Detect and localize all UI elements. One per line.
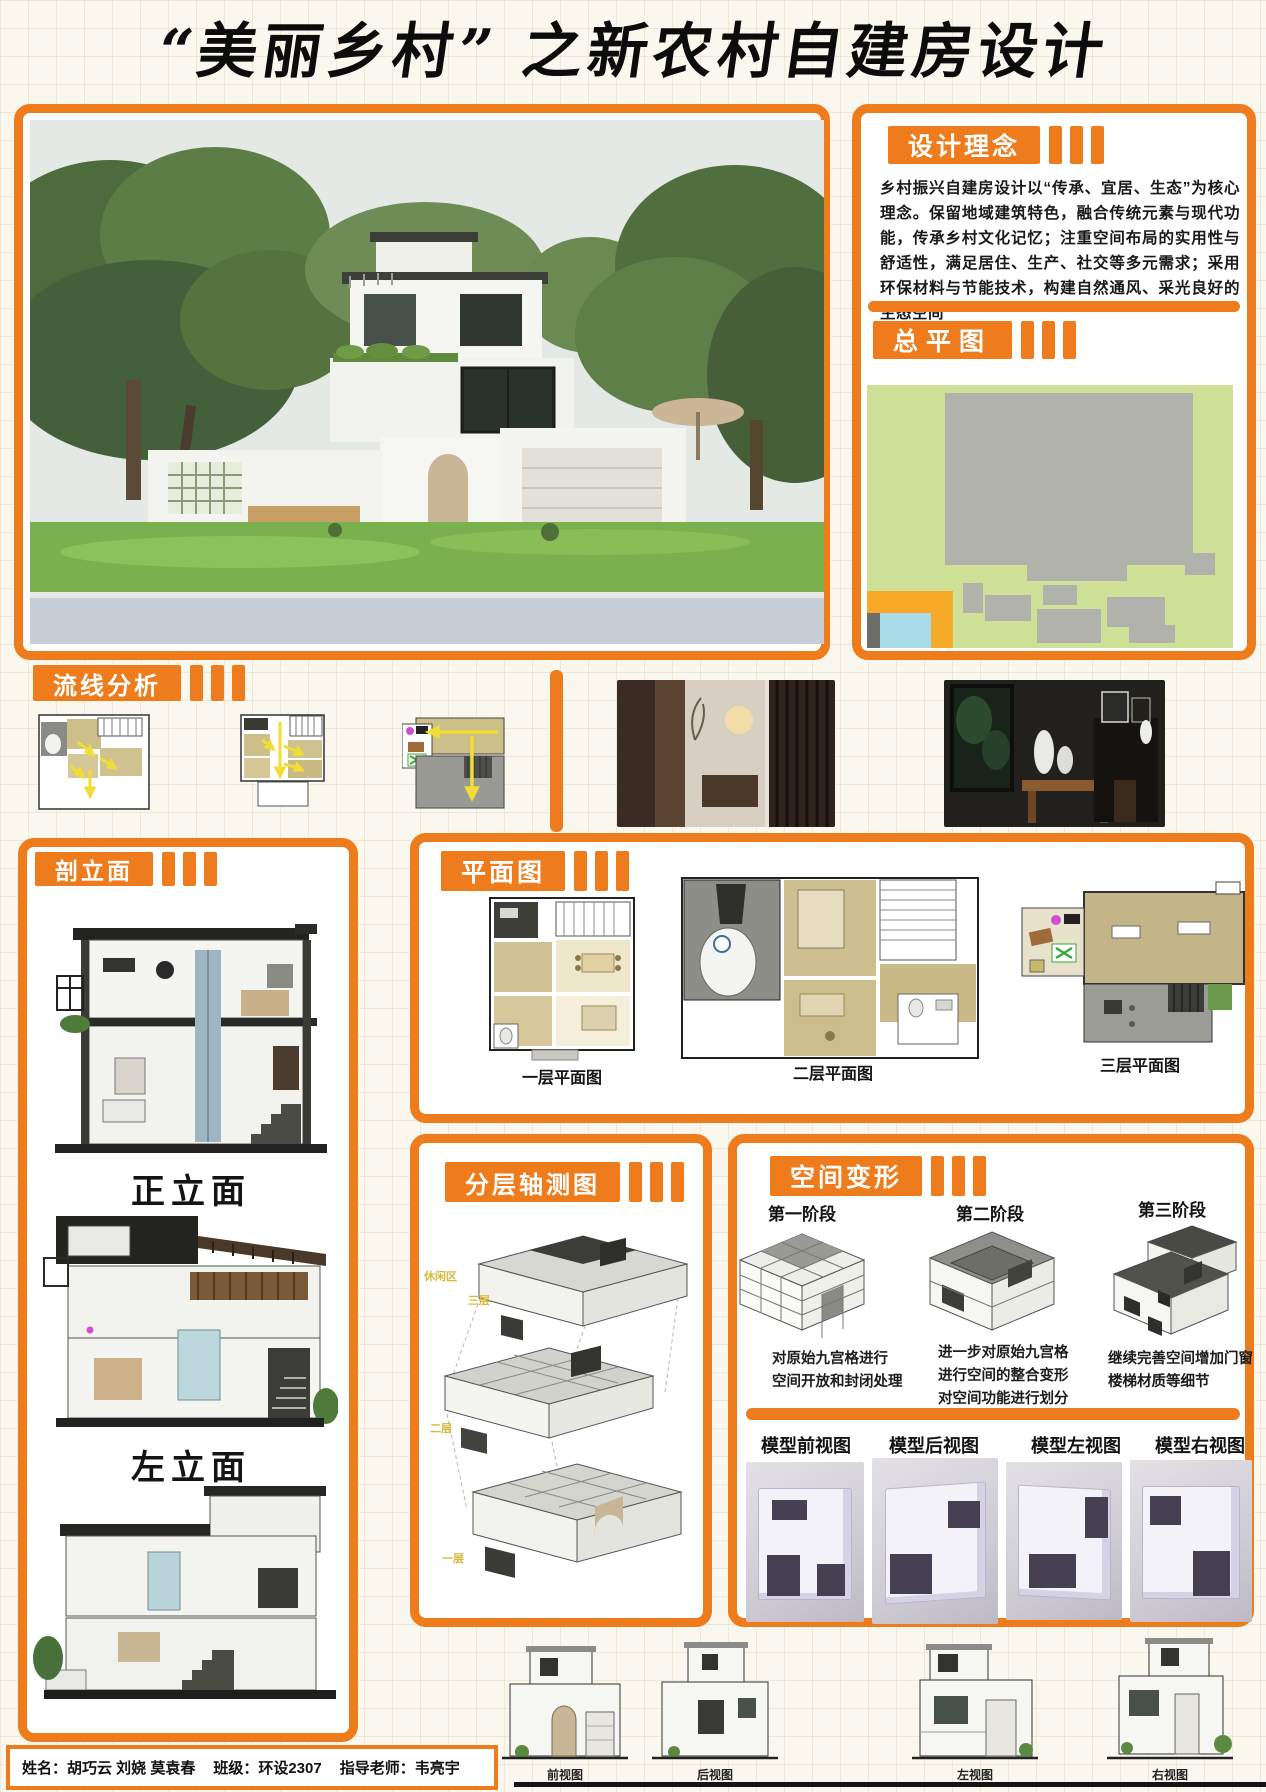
floor-plans-heading: 平面图 [441, 851, 565, 891]
poster-title-row: “美丽乡村” 之新农村自建房设计 [0, 8, 1266, 96]
master-plan-map [867, 385, 1233, 648]
section-heading: 剖立面 [35, 852, 153, 886]
header-stripes-icon [162, 852, 217, 886]
stage-2-model [922, 1226, 1062, 1340]
map-pool [880, 613, 931, 648]
poster-board: “美丽乡村” 之新农村自建房设计 [0, 0, 1266, 1792]
credit-class: 班级：环设2307 [213, 1757, 321, 1778]
elevation-front-drawing [500, 1642, 630, 1764]
model-photo-front [746, 1462, 864, 1622]
axon-level-2 [445, 1346, 653, 1454]
space-transform-heading: 空间变形 [770, 1156, 922, 1196]
master-plan-header: 总平图 [873, 321, 1076, 359]
axon-tag-leisure: 休闲区 [424, 1268, 457, 1284]
model-right-view-label: 模型右视图 [1144, 1432, 1256, 1458]
road [30, 598, 824, 644]
header-stripes-icon [1021, 321, 1076, 359]
house-render-image [30, 120, 824, 644]
space-transform-header: 空间变形 [770, 1156, 986, 1196]
floor-plan-3 [1020, 880, 1248, 1044]
model-photo-rear [872, 1458, 998, 1624]
axon-tag-floor3: 三层 [468, 1292, 490, 1308]
circulation-plan-3 [402, 716, 506, 810]
floor-plan-2-label: 二层平面图 [718, 1060, 948, 1084]
circulation-plan-1 [38, 714, 150, 810]
front-section-label: 正立面 [45, 1164, 337, 1213]
floor-plan-1 [486, 896, 638, 1062]
axonometric-heading: 分层轴测图 [445, 1162, 620, 1202]
stage-1-label: 第一阶段 [742, 1200, 862, 1225]
section-drawing-front [45, 898, 337, 1160]
elevation-right-drawing [1105, 1636, 1235, 1764]
axon-level-1 [473, 1464, 681, 1578]
stage-3-model [1096, 1222, 1246, 1340]
transform-divider [746, 1408, 1240, 1420]
stage-3-label: 第三阶段 [1112, 1196, 1232, 1221]
section-drawing-left [38, 1208, 338, 1436]
header-stripes-icon [931, 1156, 986, 1196]
stage-1-model [732, 1228, 872, 1340]
circulation-header: 流线分析 [33, 665, 245, 701]
interior-photo-hallway [617, 680, 835, 827]
circulation-heading: 流线分析 [33, 665, 181, 701]
elevation-front-label: 前视图 [500, 1766, 630, 1783]
floor-plans-header: 平面图 [441, 851, 629, 891]
stage-2-description: 进一步对原始九宫格 进行空间的整合变形 对空间功能进行划分 [938, 1342, 1113, 1411]
model-left-view-label: 模型左视图 [1020, 1432, 1132, 1458]
credits-box: 姓名：胡巧云 刘娆 莫袁春 班级：环设2307 指导老师：韦亮宇 [6, 1745, 498, 1790]
hero-render-panel [14, 104, 830, 660]
footer-rule [514, 1782, 1266, 1787]
axon-level-3 [479, 1236, 687, 1340]
model-photo-right [1130, 1460, 1252, 1622]
stage-3-description: 继续完善空间增加门窗 楼梯材质等细节 [1108, 1348, 1266, 1394]
axonometric-drawing [425, 1222, 700, 1614]
section-drawing-three [30, 1482, 345, 1724]
axon-tag-floor1: 一层 [442, 1550, 464, 1566]
axonometric-header: 分层轴测图 [445, 1162, 684, 1202]
circulation-plan-2 [240, 714, 325, 810]
floor-plan-2 [680, 876, 980, 1060]
elevation-right-label: 右视图 [1105, 1766, 1235, 1783]
header-stripes-icon [1049, 126, 1104, 164]
model-photo-left [1006, 1462, 1122, 1620]
header-stripes-icon [574, 851, 629, 891]
floor-plan-1-label: 一层平面图 [486, 1064, 638, 1088]
elevation-left-drawing [910, 1640, 1040, 1764]
elevation-rear-label: 后视图 [650, 1766, 780, 1783]
page-title: “美丽乡村” 之新农村自建房设计 [152, 8, 1114, 96]
elevation-rear-drawing [650, 1640, 780, 1764]
header-stripes-icon [629, 1162, 684, 1202]
map-main-building [945, 393, 1193, 565]
section-header: 剖立面 [35, 852, 217, 886]
floor-plan-3-label: 三层平面图 [1030, 1052, 1250, 1076]
elevation-left-label: 左视图 [910, 1766, 1040, 1783]
credit-advisor: 指导老师：韦亮宇 [340, 1757, 460, 1778]
master-plan-heading: 总平图 [873, 321, 1012, 359]
interior-photo-dining [944, 680, 1165, 827]
stage-2-label: 第二阶段 [930, 1200, 1050, 1225]
vertical-connector [550, 670, 563, 832]
model-rear-view-label: 模型后视图 [878, 1432, 990, 1458]
design-concept-heading: 设计理念 [888, 126, 1040, 164]
header-stripes-icon [190, 665, 245, 701]
model-front-view-label: 模型前视图 [750, 1432, 862, 1458]
credit-names: 姓名：胡巧云 刘娆 莫袁春 [22, 1757, 195, 1778]
design-concept-header: 设计理念 [888, 126, 1104, 164]
axon-tag-floor2: 二层 [430, 1420, 452, 1436]
arched-door [428, 454, 468, 530]
panel-divider [868, 301, 1240, 312]
stage-1-description: 对原始九宫格进行 空间开放和封闭处理 [772, 1348, 932, 1394]
